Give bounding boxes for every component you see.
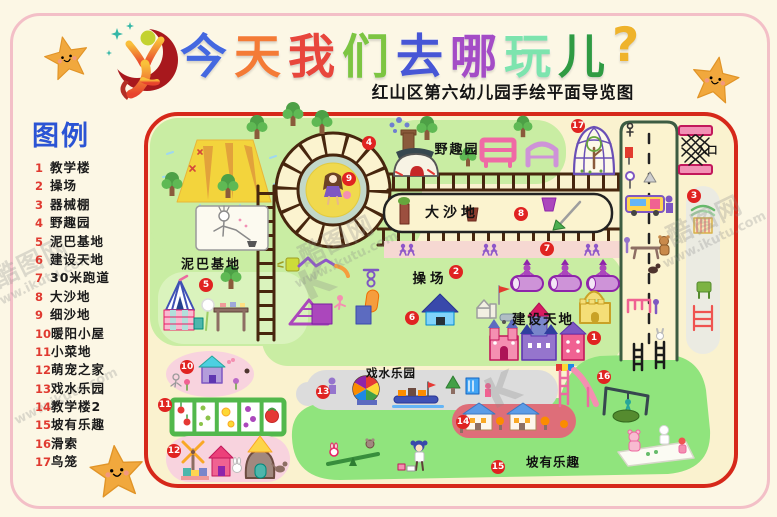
title-char: 哪 (450, 18, 497, 87)
legend-item-label: 泥巴基地 (50, 231, 104, 250)
map-badge-12: 12 (167, 444, 181, 458)
legend-item-label: 小菜地 (51, 341, 92, 360)
big-sand-area (384, 194, 612, 232)
legend-item-number: 17 (35, 455, 51, 469)
legend-item-number: 9 (35, 308, 50, 322)
legend-item: 14教学楼2 (35, 396, 110, 414)
title-char: 们 (342, 18, 389, 87)
legend-item-label: 萌宠之家 (51, 359, 105, 378)
legend-item-number: 4 (35, 216, 50, 230)
legend-item-label: 教学楼2 (51, 396, 101, 415)
title-char: 天 (234, 18, 281, 87)
label-entrance: 入口 (697, 143, 718, 158)
legend-item-number: 5 (35, 235, 50, 249)
legend-item-number: 12 (35, 363, 51, 377)
legend-item-number: 14 (35, 400, 51, 414)
legend-item: 16滑索 (35, 433, 110, 451)
title-char: 玩 (504, 18, 551, 87)
legend-item-label: 野趣园 (50, 212, 91, 231)
label-big-sand: 大沙地 (425, 202, 479, 222)
title-char: 儿 (558, 18, 605, 87)
map-badge-15: 15 (491, 460, 505, 474)
map-badge-9: 9 (342, 172, 356, 186)
legend-item-label: 滑索 (51, 433, 78, 452)
legend-item: 5泥巴基地 (35, 231, 110, 249)
label-mud-base: 泥巴基地 (181, 254, 241, 273)
label-construction: 建设天地 (512, 308, 574, 328)
legend-item-label: 坡有乐趣 (51, 414, 105, 433)
map-badge-5: 5 (199, 278, 213, 292)
map-badge-14: 14 (456, 415, 470, 429)
map-badge-7: 7 (540, 242, 554, 256)
map-badge-13: 13 (316, 385, 330, 399)
subtitle: 红山区第六幼儿园手绘平面导览图 (340, 79, 666, 103)
legend-title: 图例 (32, 114, 90, 153)
page-title: 今 天 我 们 去 哪 玩 儿 ? (180, 18, 639, 87)
legend-item-number: 15 (35, 418, 51, 432)
poster-page: 酷图网 www.ikutu.com K 酷图网 www.ikutu.com K … (0, 0, 777, 517)
legend-item-label: 30米跑道 (50, 267, 110, 286)
legend-item: 15坡有乐趣 (35, 414, 110, 432)
fine-sand-circle (306, 163, 360, 217)
legend-item-number: 13 (35, 382, 51, 396)
legend-item-number: 1 (35, 161, 50, 175)
map-badge-17: 17 (571, 119, 585, 133)
legend-item: 13戏水乐园 (35, 378, 110, 396)
legend-item-label: 操场 (50, 175, 77, 194)
legend-item-number: 7 (35, 271, 50, 285)
legend-item-label: 器械棚 (50, 194, 91, 213)
map-badge-8: 8 (514, 207, 528, 221)
map-badge-11: 11 (158, 398, 172, 412)
label-wild-garden: 野趣园 (434, 139, 479, 158)
legend-item: 6建设天地 (35, 249, 110, 267)
kindergarten-logo (103, 20, 187, 108)
title-char: ? (612, 18, 639, 87)
label-slope-fun: 坡有乐趣 (526, 452, 580, 471)
legend-item: 1教学楼 (35, 157, 110, 175)
vegetable-garden (172, 400, 284, 434)
map-badge-2: 2 (449, 265, 463, 279)
map-badge-10: 10 (180, 360, 194, 374)
label-playground: 操场 (413, 267, 448, 287)
map-badge-6: 6 (405, 311, 419, 325)
map-badge-3: 3 (687, 189, 701, 203)
legend-item: 8大沙地 (35, 286, 110, 304)
title-char: 我 (288, 18, 335, 87)
legend-item-number: 11 (35, 345, 51, 359)
pet-house (166, 436, 290, 482)
legend-item: 12萌宠之家 (35, 359, 110, 377)
legend-item-number: 10 (35, 327, 51, 341)
legend-item-number: 16 (35, 437, 51, 451)
legend-item: 4野趣园 (35, 212, 110, 230)
title-char: 今 (180, 18, 227, 87)
label-water-park: 戏水乐园 (366, 365, 416, 381)
star-decoration (686, 52, 744, 114)
map-badge-16: 16 (597, 370, 611, 384)
legend-item-label: 大沙地 (50, 286, 91, 305)
legend-item-label: 细沙地 (50, 304, 91, 323)
legend-item-label: 鸟笼 (51, 451, 78, 470)
legend-item-number: 2 (35, 179, 50, 193)
legend-item-label: 教学楼 (50, 157, 91, 176)
warm-cottage (166, 351, 254, 397)
legend-item-label: 戏水乐园 (51, 378, 105, 397)
legend-item: 2操场 (35, 175, 110, 193)
star-decoration (40, 32, 94, 90)
legend-item-number: 3 (35, 198, 50, 212)
running-track (384, 241, 652, 258)
title-char: 去 (396, 18, 443, 87)
legend-item-label: 暖阳小屋 (51, 323, 105, 342)
legend-item: 10暖阳小屋 (35, 323, 110, 341)
legend-item: 730米跑道 (35, 267, 110, 285)
legend: 1教学楼 2操场 3器械棚 4野趣园 5泥巴基地 6建设天地 730米跑道 8大… (35, 157, 110, 470)
legend-item: 3器械棚 (35, 194, 110, 212)
legend-item: 9细沙地 (35, 304, 110, 322)
legend-item: 17鸟笼 (35, 451, 110, 469)
legend-item-number: 6 (35, 253, 50, 267)
map-badge-1: 1 (587, 331, 601, 345)
legend-item-number: 8 (35, 290, 50, 304)
legend-item: 11小菜地 (35, 341, 110, 359)
map-badge-4: 4 (362, 136, 376, 150)
legend-item-label: 建设天地 (50, 249, 104, 268)
